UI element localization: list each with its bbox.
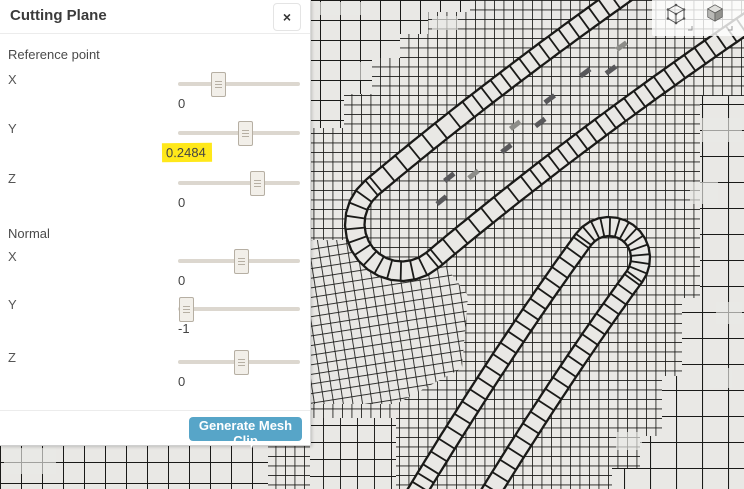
reference-y-value: 0.2484	[162, 143, 212, 162]
axis-label-z: Z	[8, 350, 16, 365]
view-toolbar	[652, 0, 744, 36]
normal-y-slider[interactable]	[178, 307, 300, 311]
axis-label-y: Y	[8, 297, 17, 312]
corner-mark-icon	[727, 25, 733, 31]
normal-y-value: -1	[178, 321, 190, 336]
normal-x-value: 0	[178, 273, 185, 288]
axis-label-y: Y	[8, 121, 17, 136]
reference-x-slider-handle[interactable]	[211, 72, 226, 97]
axis-label-x: X	[8, 72, 17, 87]
section-label-reference-point: Reference point	[8, 47, 100, 62]
reference-z-slider-handle[interactable]	[250, 171, 265, 196]
normal-z-slider[interactable]	[178, 360, 300, 364]
normal-y-row: Y -1	[0, 295, 310, 341]
normal-z-row: Z 0	[0, 348, 310, 394]
reference-y-slider[interactable]	[178, 131, 300, 135]
normal-x-slider-handle[interactable]	[234, 249, 249, 274]
divider	[0, 410, 310, 411]
reference-x-value: 0	[178, 96, 185, 111]
reference-z-value: 0	[178, 195, 185, 210]
normal-z-slider-handle[interactable]	[234, 350, 249, 375]
wireframe-view-button[interactable]	[665, 3, 691, 31]
reference-y-slider-handle[interactable]	[238, 121, 253, 146]
app-window: Cutting Plane × Reference point X 0 Y 0.…	[0, 0, 744, 489]
highlighted-value: 0.2484	[162, 143, 212, 163]
wireframe-cube-icon	[665, 3, 687, 25]
close-button[interactable]: ×	[273, 3, 301, 31]
axis-label-x: X	[8, 249, 17, 264]
solid-cube-icon	[705, 3, 725, 23]
section-label-normal: Normal	[8, 226, 50, 241]
normal-x-row: X 0	[0, 247, 310, 293]
corner-mark-icon	[687, 25, 693, 31]
solid-view-button[interactable]	[705, 3, 731, 31]
generate-mesh-clip-button[interactable]: Generate Mesh Clip	[189, 417, 302, 441]
reference-z-slider[interactable]	[178, 181, 300, 185]
reference-z-row: Z 0	[0, 169, 310, 215]
normal-x-slider[interactable]	[178, 259, 300, 263]
divider	[0, 33, 310, 34]
normal-z-value: 0	[178, 374, 185, 389]
reference-x-slider[interactable]	[178, 82, 300, 86]
reference-y-row: Y 0.2484	[0, 119, 310, 165]
normal-y-slider-handle[interactable]	[179, 297, 194, 322]
cutting-plane-panel: Cutting Plane × Reference point X 0 Y 0.…	[0, 0, 311, 446]
reference-x-row: X 0	[0, 70, 310, 116]
panel-title: Cutting Plane	[10, 7, 107, 24]
axis-label-z: Z	[8, 171, 16, 186]
